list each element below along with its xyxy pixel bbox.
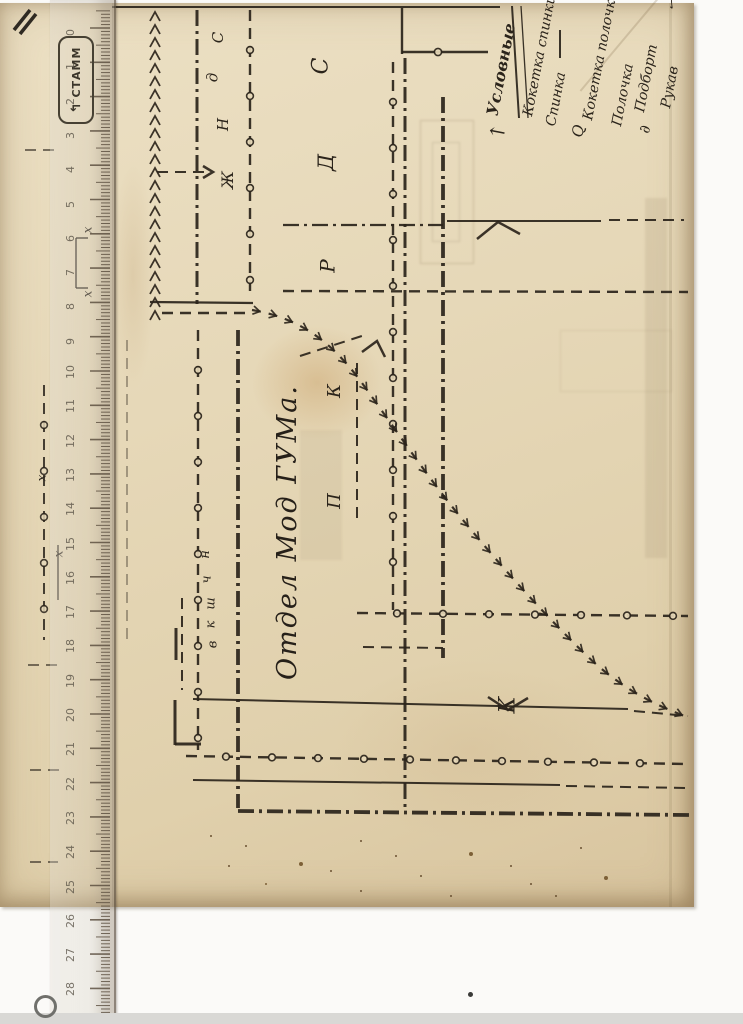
ruler-number-14: 14 [64, 502, 77, 516]
pattern-circle-mark [195, 735, 202, 742]
curve-feather-mark [284, 322, 292, 323]
pattern-circle-mark [41, 468, 48, 475]
zigzag-arrow-line [150, 64, 160, 73]
pattern-circle-mark [545, 758, 552, 765]
dash-pattern-line [363, 647, 443, 648]
pattern-circle-mark [390, 375, 397, 382]
ruler-number-27: 27 [64, 948, 77, 962]
zigzag-arrow-line [150, 77, 160, 86]
piece-letter-К: К [498, 696, 520, 713]
ruler-number-28: 28 [64, 982, 77, 996]
ruler-number-1: 1 [64, 63, 77, 70]
pattern-circle-mark [269, 754, 276, 761]
curve-feather-mark [415, 451, 416, 459]
pattern-circle-mark [591, 759, 598, 766]
curve-feather-mark [269, 316, 277, 318]
pattern-circle-mark [390, 559, 397, 566]
notch-mark [477, 222, 520, 239]
dash-pattern-line [300, 334, 368, 356]
curve-feather-mark [659, 709, 667, 710]
ruler-number-7: 7 [64, 269, 77, 276]
scanned-sewing-pattern-sheet: СдНЖСДРКПнчшквКхххх Отдел Мод ГУМа. Усло… [0, 0, 743, 1024]
pattern-circle-mark [499, 758, 506, 765]
pattern-circle-mark [390, 283, 397, 290]
pattern-circle-mark [315, 755, 322, 762]
ruler-number-24: 24 [64, 845, 77, 859]
piece-letter-Ж: Ж [220, 171, 236, 189]
curve-feather-mark [313, 339, 321, 340]
dash-pattern-line [566, 786, 688, 788]
piece-letter-в: в [206, 641, 219, 649]
zigzag-arrow-line [150, 142, 160, 151]
pattern-circle-mark [195, 459, 202, 466]
zigzag-arrow-line [150, 51, 160, 60]
pattern-circle-mark [390, 237, 397, 244]
solid-pattern-line [512, 6, 519, 118]
piece-letter-П: П [326, 493, 344, 509]
ruler-number-12: 12 [64, 434, 77, 448]
piece-letter-Р: Р [318, 259, 338, 272]
ruler-number-5: 5 [64, 201, 77, 208]
ruler-number-6: 6 [64, 235, 77, 242]
zigzag-arrow-line [150, 259, 160, 268]
curve-feather-mark [366, 382, 367, 390]
zigzag-arrow-line [150, 220, 160, 229]
zigzag-arrow-line [150, 194, 160, 203]
zigzag-arrow-line [150, 181, 160, 190]
ruler-tick-marks [50, 0, 114, 1024]
pattern-circle-mark [453, 757, 460, 764]
pattern-circle-mark [41, 560, 48, 567]
piece-letter-К: К [326, 384, 344, 398]
zigzag-arrow-line [150, 233, 160, 242]
pattern-circle-mark [41, 422, 48, 429]
pattern-circle-mark [670, 612, 677, 619]
ruler-number-23: 23 [64, 811, 77, 825]
zigzag-arrow-line [150, 285, 160, 294]
piece-letter-ш: ш [205, 597, 218, 609]
transparent-ruler: ↰ СТАММ 01234567891011121314151617181920… [50, 0, 116, 1024]
piece-letter-д: д [205, 73, 220, 83]
pattern-circle-mark [195, 505, 202, 512]
curve-feather-mark [376, 395, 377, 403]
dashcircle-pattern-line [186, 756, 688, 764]
atelier-title: Отдел Мод ГУМа. [272, 384, 303, 680]
pattern-circle-mark [390, 191, 397, 198]
pattern-circle-mark [434, 48, 441, 55]
piece-letter-ч: ч [201, 575, 214, 583]
pattern-circle-mark [440, 610, 447, 617]
curve-feather-mark [425, 465, 426, 473]
ruler-number-4: 4 [64, 166, 77, 173]
ruler-number-25: 25 [64, 880, 77, 894]
pattern-circle-mark [637, 760, 644, 767]
zigzag-arrow-line [150, 129, 160, 138]
curve-feather-mark [252, 311, 260, 314]
ruler-number-17: 17 [64, 605, 77, 619]
brand-name: СТАММ [70, 47, 83, 98]
zigzag-arrow-line [150, 90, 160, 99]
curve-feather-mark [406, 437, 407, 445]
piece-letter-Д: Д [316, 154, 337, 171]
pattern-circle-mark [624, 612, 631, 619]
curve-feather-mark [396, 423, 397, 431]
zigzag-arrow-line [150, 12, 160, 21]
zigzag-arrow-line [150, 25, 160, 34]
pattern-circle-mark [361, 755, 368, 762]
scanner-edge-band [0, 1013, 743, 1024]
pattern-circle-mark [578, 612, 585, 619]
dashed-curve-line [252, 310, 687, 717]
pattern-circle-mark [247, 277, 254, 284]
piece-letter-х: х [35, 475, 47, 482]
ruler-number-13: 13 [64, 468, 77, 482]
ruler-hanging-hole [34, 995, 57, 1018]
pattern-circle-mark [486, 611, 493, 618]
curve-feather-mark [386, 409, 387, 417]
ruler-number-18: 18 [64, 639, 77, 653]
pattern-circle-mark [390, 99, 397, 106]
solid-pattern-line [193, 699, 628, 709]
pattern-circle-mark [223, 753, 230, 760]
solid-pattern-line [150, 302, 253, 303]
curve-feather-mark [600, 673, 608, 674]
pattern-circle-mark [247, 139, 254, 146]
zigzag-arrow-line [150, 116, 160, 125]
pattern-circle-mark [195, 643, 202, 650]
ruler-number-22: 22 [64, 777, 77, 791]
zigzag-arrow-line [150, 272, 160, 281]
dashdot-pattern-line [238, 811, 690, 815]
pattern-circle-mark [247, 185, 254, 192]
pattern-circle-mark [195, 597, 202, 604]
ruler-number-21: 21 [64, 742, 77, 756]
solid-pattern-line [193, 780, 560, 785]
pattern-circle-mark [195, 367, 202, 374]
ruler-number-20: 20 [64, 708, 77, 722]
pattern-circle-mark [390, 145, 397, 152]
pattern-circle-mark [390, 513, 397, 520]
dashcircle-pattern-line [357, 613, 688, 616]
curve-feather-mark [643, 701, 651, 702]
zigzag-arrow-line [150, 311, 160, 320]
ruler-number-0: 0 [64, 29, 77, 36]
pattern-circle-mark [195, 689, 202, 696]
scanner-dust-dot [468, 992, 473, 997]
zigzag-arrow-line [150, 103, 160, 112]
pattern-circle-mark [390, 467, 397, 474]
ruler-number-3: 3 [64, 132, 77, 139]
piece-letter-н: н [199, 550, 212, 559]
pattern-circle-mark [41, 606, 48, 613]
piece-letter-к: к [204, 621, 217, 629]
zigzag-arrow-line [150, 155, 160, 164]
pattern-circle-mark [407, 756, 414, 763]
ruler-number-2: 2 [64, 98, 77, 105]
piece-letter-С: С [211, 32, 226, 43]
pattern-circle-mark [195, 413, 202, 420]
curve-feather-mark [446, 492, 447, 500]
piece-letter-Н: Н [216, 118, 231, 131]
pattern-circle-mark [247, 47, 254, 54]
notch-mark [362, 341, 385, 357]
ruler-number-15: 15 [64, 537, 77, 551]
piece-letter-С: С [310, 58, 332, 75]
ruler-number-26: 26 [64, 914, 77, 928]
ruler-brand-logo: ↰ СТАММ [58, 36, 94, 124]
ruler-number-10: 10 [64, 365, 77, 379]
pattern-circle-mark [390, 329, 397, 336]
ruler-number-16: 16 [64, 571, 77, 585]
pattern-circle-mark [532, 611, 539, 618]
zigzag-arrow-line [150, 246, 160, 255]
zigzag-arrow-line [150, 38, 160, 47]
pattern-circle-mark [247, 93, 254, 100]
pattern-circle-mark [41, 514, 48, 521]
pattern-circle-mark [247, 231, 254, 238]
ruler-number-19: 19 [64, 674, 77, 688]
dash-pattern-line [283, 291, 688, 292]
ruler-number-11: 11 [64, 399, 77, 413]
pattern-circle-mark [394, 610, 401, 617]
ruler-number-8: 8 [64, 303, 77, 310]
zigzag-arrow-line [150, 207, 160, 216]
curve-feather-mark [436, 478, 437, 486]
ruler-number-9: 9 [64, 338, 77, 345]
